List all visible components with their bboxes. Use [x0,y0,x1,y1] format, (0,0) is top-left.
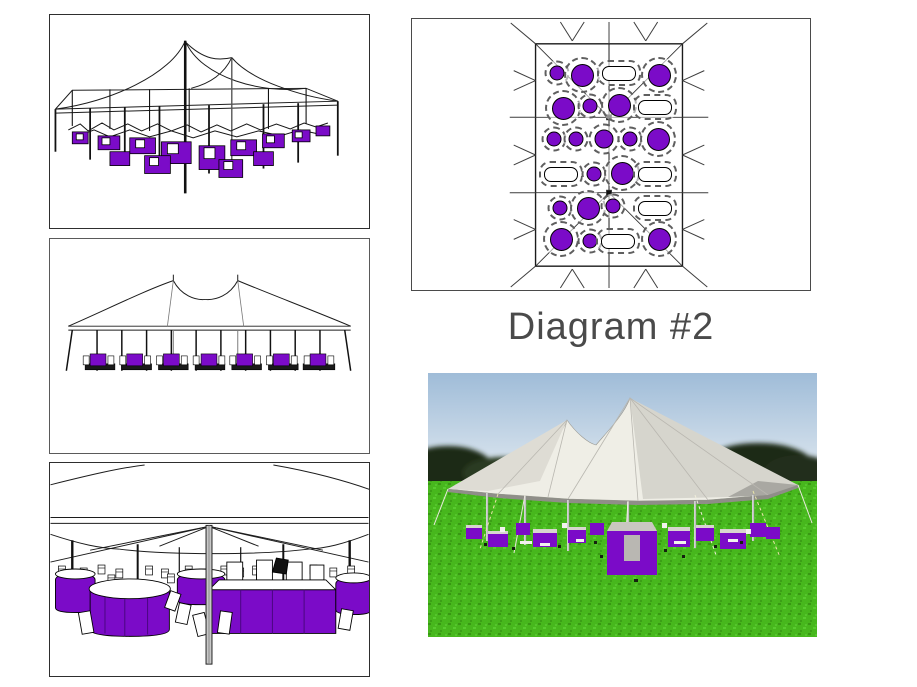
table-top [623,132,638,147]
floorplan-table-round-sm [548,196,573,221]
floorplan-table-round-lg [564,57,600,93]
table-top [553,201,568,216]
floorplan-table-round-lg [641,221,677,257]
table-top [648,228,671,251]
perspective-view-panel [49,14,370,229]
floorplan-table-oval [539,161,583,187]
floorplan-table-round-lg [640,121,676,157]
table-top [638,201,672,216]
floorplan-table-round-sm [618,127,643,152]
table-top [550,66,565,81]
floorplan-table-round-sm [564,127,589,152]
tables-cluster [72,126,330,178]
table-top [648,64,671,87]
floorplan-table-oval [633,94,677,120]
floorplan-table-round-sm [578,94,603,119]
floorplan-table-round-lg [543,221,579,257]
elevation-view-panel [49,238,370,454]
table-top [569,132,584,147]
table-top [547,132,562,147]
floorplan-table-round-md [589,124,620,155]
tent-perspective-drawing [50,15,369,228]
tent-render [428,373,817,637]
tent-roof-wireframe [55,41,337,113]
table-top [611,162,634,185]
outer-roof-lines [50,465,369,523]
floorplan-table-oval [633,195,677,221]
floorplan-table-round-lg [601,87,637,123]
table-top [571,64,594,87]
caption: Diagram #2 [411,306,811,358]
table-top [647,128,670,151]
floorplan-tables-layer [412,19,812,292]
center-pole [206,525,212,664]
table-top [638,167,672,182]
tent-layout-sheet: Diagram #2 [0,0,917,687]
table-top [601,234,635,249]
interior-view-panel [49,462,370,677]
tent-poles [55,41,337,194]
render-view-panel [428,373,817,637]
tent-roof-outline [68,275,350,330]
floorplan-table-round-lg [545,90,581,126]
floorplan-table-oval [597,60,641,86]
table-top [577,197,600,220]
tent-interior-drawing [50,463,369,676]
table-top [608,94,631,117]
table-top [550,228,573,251]
table-top [552,97,575,120]
floorplan-table-oval [596,228,640,254]
table-top [638,100,672,115]
floorplan-table-round-sm [582,162,607,187]
table-top [587,167,602,182]
floor-plan-panel [411,18,811,291]
table-top [595,130,614,149]
tent-elevation-drawing [50,239,369,453]
table-top [544,167,578,182]
table-top [602,66,636,81]
table-band [83,354,335,370]
floorplan-table-round-lg [641,57,677,93]
table-top [583,99,598,114]
table-top [606,199,621,214]
floorplan-table-round-sm [601,194,626,219]
floorplan-table-oval [633,161,677,187]
